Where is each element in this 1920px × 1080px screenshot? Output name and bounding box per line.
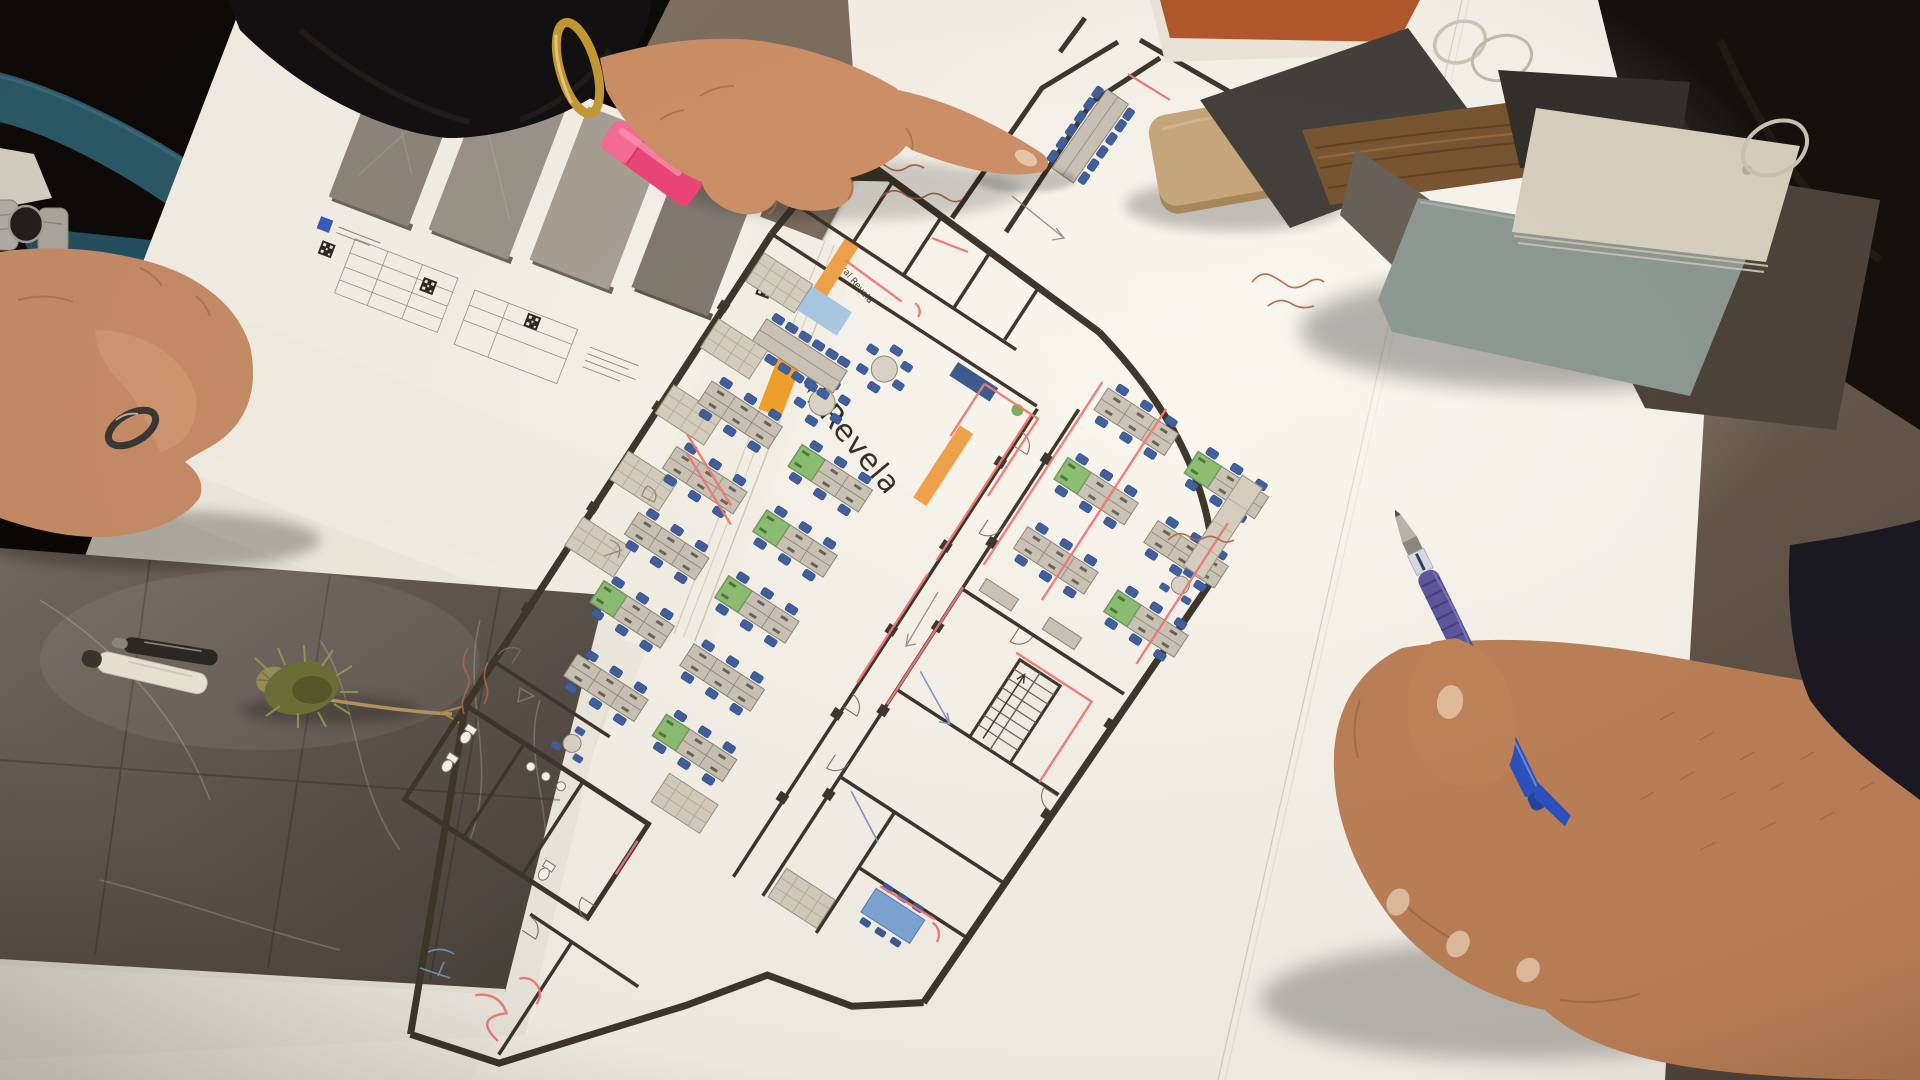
photo-scene: Mural Revela Mural Revela xyxy=(0,0,1920,1080)
vignette xyxy=(0,0,1920,1080)
scene-canvas: Mural Revela Mural Revela xyxy=(0,0,1920,1080)
